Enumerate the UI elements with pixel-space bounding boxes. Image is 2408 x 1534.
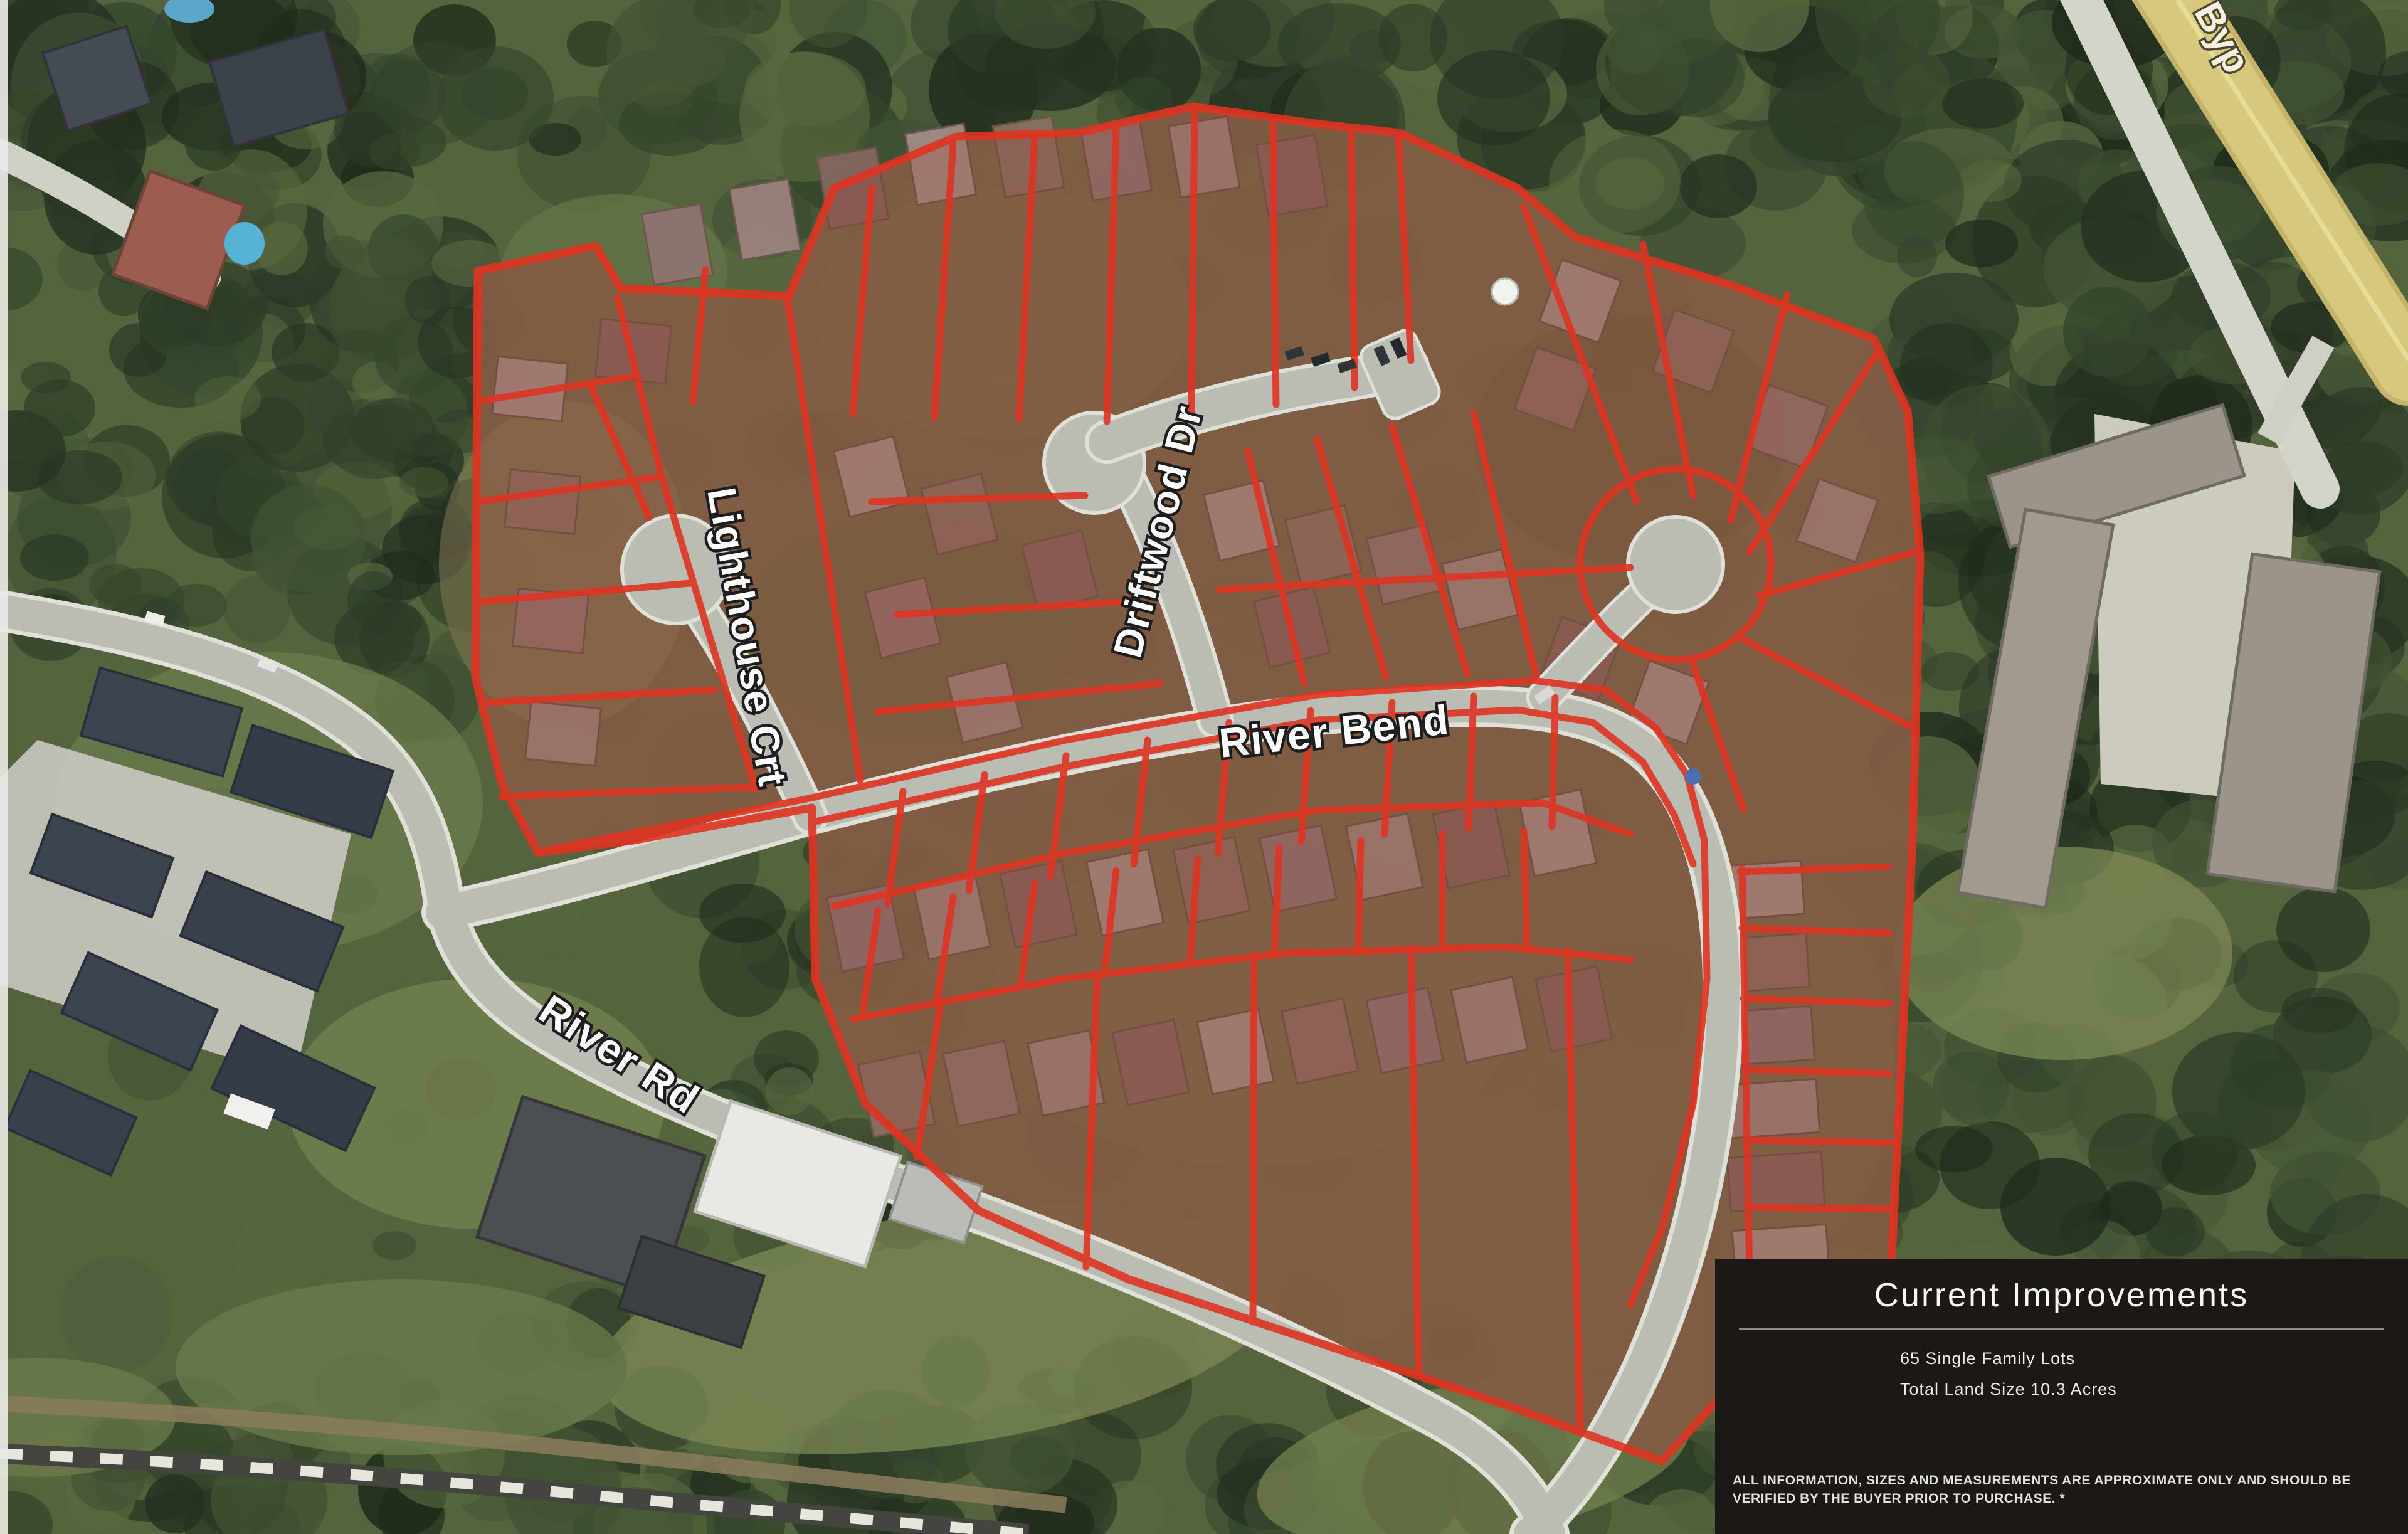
satellite-dome — [1492, 278, 1518, 305]
aerial-map-screenshot: Lighthouse Crt Driftwood Dr River Bend R… — [0, 0, 2408, 1534]
info-panel: Current Improvements 65 Single Family Lo… — [1715, 1259, 2408, 1534]
swimming-pool-south — [224, 222, 265, 265]
panel-divider — [1739, 1328, 2384, 1330]
panel-stat-lots: 65 Single Family Lots — [1900, 1349, 2408, 1368]
spur-cul-de-sac — [1628, 517, 1723, 612]
panel-stat-size: Total Land Size 10.3 Acres — [1900, 1380, 2408, 1399]
panel-title: Current Improvements — [1715, 1276, 2408, 1314]
car-blue — [1685, 768, 1701, 785]
left-border-strip — [0, 0, 8, 1534]
panel-disclaimer: ALL INFORMATION, SIZES AND MEASUREMENTS … — [1733, 1471, 2379, 1508]
